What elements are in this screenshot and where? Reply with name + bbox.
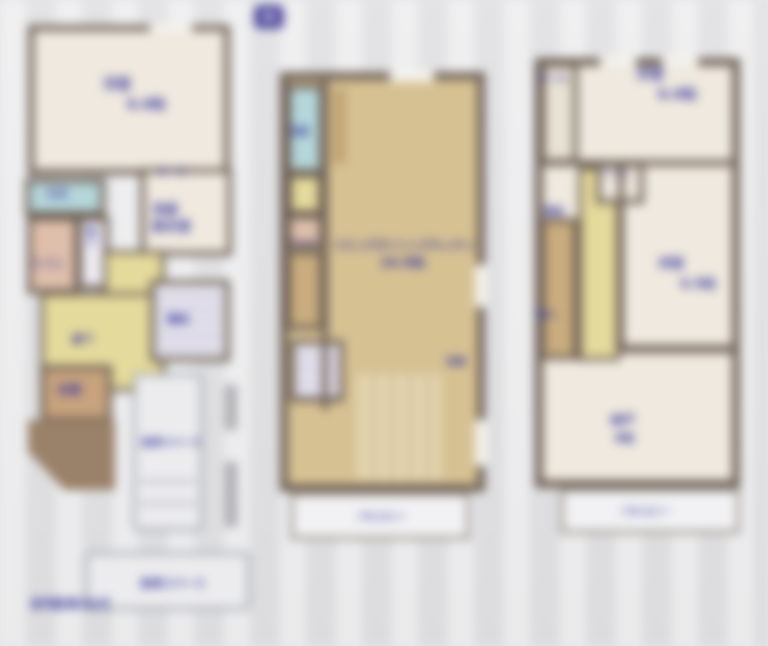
room-1f-entrance-label: 玄関 [57,384,81,397]
wall-3f-h2 [618,345,738,353]
window-3f-top-1 [600,55,636,67]
window-1f-bedroom [150,23,192,33]
wall-bar [225,385,237,430]
room-1f-hall-small-label: ホール [157,167,187,178]
room-3f-closet-label: 物入 [537,310,557,321]
window-2f-top [390,70,434,82]
north-arrow: N [254,5,284,29]
room-2f-storage-label: 収納 [446,357,466,368]
room-1f-storage-label: 物入 [84,226,95,246]
floorplan-canvas: 洋室 6.0帖 ホール 洗面 脱衣室 浴室 トイレ 物入 廊下 階段 玄関 [0,0,768,646]
room-3f-bedroom2-label: 洋室 [658,258,684,272]
room-2f-ldk-label: リビングダイニングキッチン [332,240,475,252]
window-2f-right-1 [475,265,487,307]
parking-note-label: 並列駐車2台可 [30,598,110,611]
room-2f-ldk-size: 16.0帖 [380,257,425,271]
room-3f-closet [540,218,578,360]
room-3f-bedroom2-size: 4.5帖 [680,278,716,292]
room-3f-stairs-label: 階段 [544,207,564,218]
window-3f-top-2 [662,55,698,67]
room-3f-storage-size: 4帖 [614,432,634,445]
parking-space-1 [133,373,203,531]
window-2f-right-2 [475,420,487,466]
hall-1f-label: 廊下 [72,334,94,346]
parking-space-1-label: 駐車スペース [142,438,201,449]
hall-2f [288,174,322,214]
room-2f-washstand-label: 洗面 [289,127,309,138]
balcony-3f-label: バルコニー [621,507,671,518]
room-1f-washroom-line2: 脱衣室 [152,221,191,235]
room-1f-toilet [27,216,79,294]
stair-void-2f [357,374,441,480]
kitchen-counter [332,88,346,164]
parking-line [140,480,196,483]
room-3f-bedroom1-label: 洋室 [636,68,664,83]
room-3f-hall-label: ホール [538,74,568,85]
parking-line [140,502,196,505]
wall-2f-inner [322,80,328,410]
room-1f-bedroom-label: 洋室 [103,78,131,93]
room-2f-stairs [290,340,344,402]
parking-space-2-label: 駐車スペース [141,578,206,590]
room-3f-toilet-label: トイレ [601,168,631,179]
blur-layer: 洋室 6.0帖 ホール 洗面 脱衣室 浴室 トイレ 物入 廊下 階段 玄関 [0,0,768,646]
room-1f-stairs [150,280,230,362]
room-1f-bath-label: 浴室 [46,188,68,200]
balcony-2f-label: バルコニー [357,512,407,523]
room-3f-storage-label: 納戸 [611,414,635,427]
room-3f-bedroom1-size: 6.0帖 [658,88,697,103]
wall-3f-v1 [618,166,624,352]
room-2f-toilet-label: トイレ [289,239,319,250]
room-1f-toilet-label: トイレ [31,258,64,270]
room-1f-washroom-line1: 洗面 [152,204,178,218]
room-1f-bedroom-size: 6.0帖 [127,98,166,113]
wall-bar [225,462,237,527]
room-2f-closet [286,250,324,330]
room-1f-stairs-label: 階段 [167,314,189,326]
